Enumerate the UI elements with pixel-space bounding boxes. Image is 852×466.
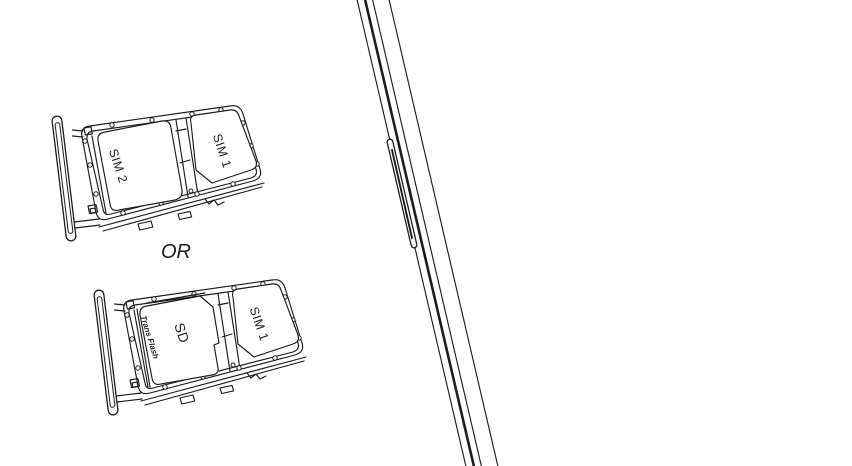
line-art-drawing: SIM 2 SIM 1 OR Trans Flash SD SIM 1: [0, 0, 852, 466]
phone-side-edge: [356, 0, 499, 466]
sim-tray-manual-illustration: SIM 2 SIM 1 OR Trans Flash SD SIM 1: [0, 0, 852, 466]
sim2-card: [98, 121, 182, 211]
tray-option-sim-sd: Trans Flash SD SIM 1: [99, 280, 306, 410]
tray-option-dual-sim: SIM 2 SIM 1: [57, 106, 264, 236]
or-separator-label: OR: [161, 241, 191, 263]
